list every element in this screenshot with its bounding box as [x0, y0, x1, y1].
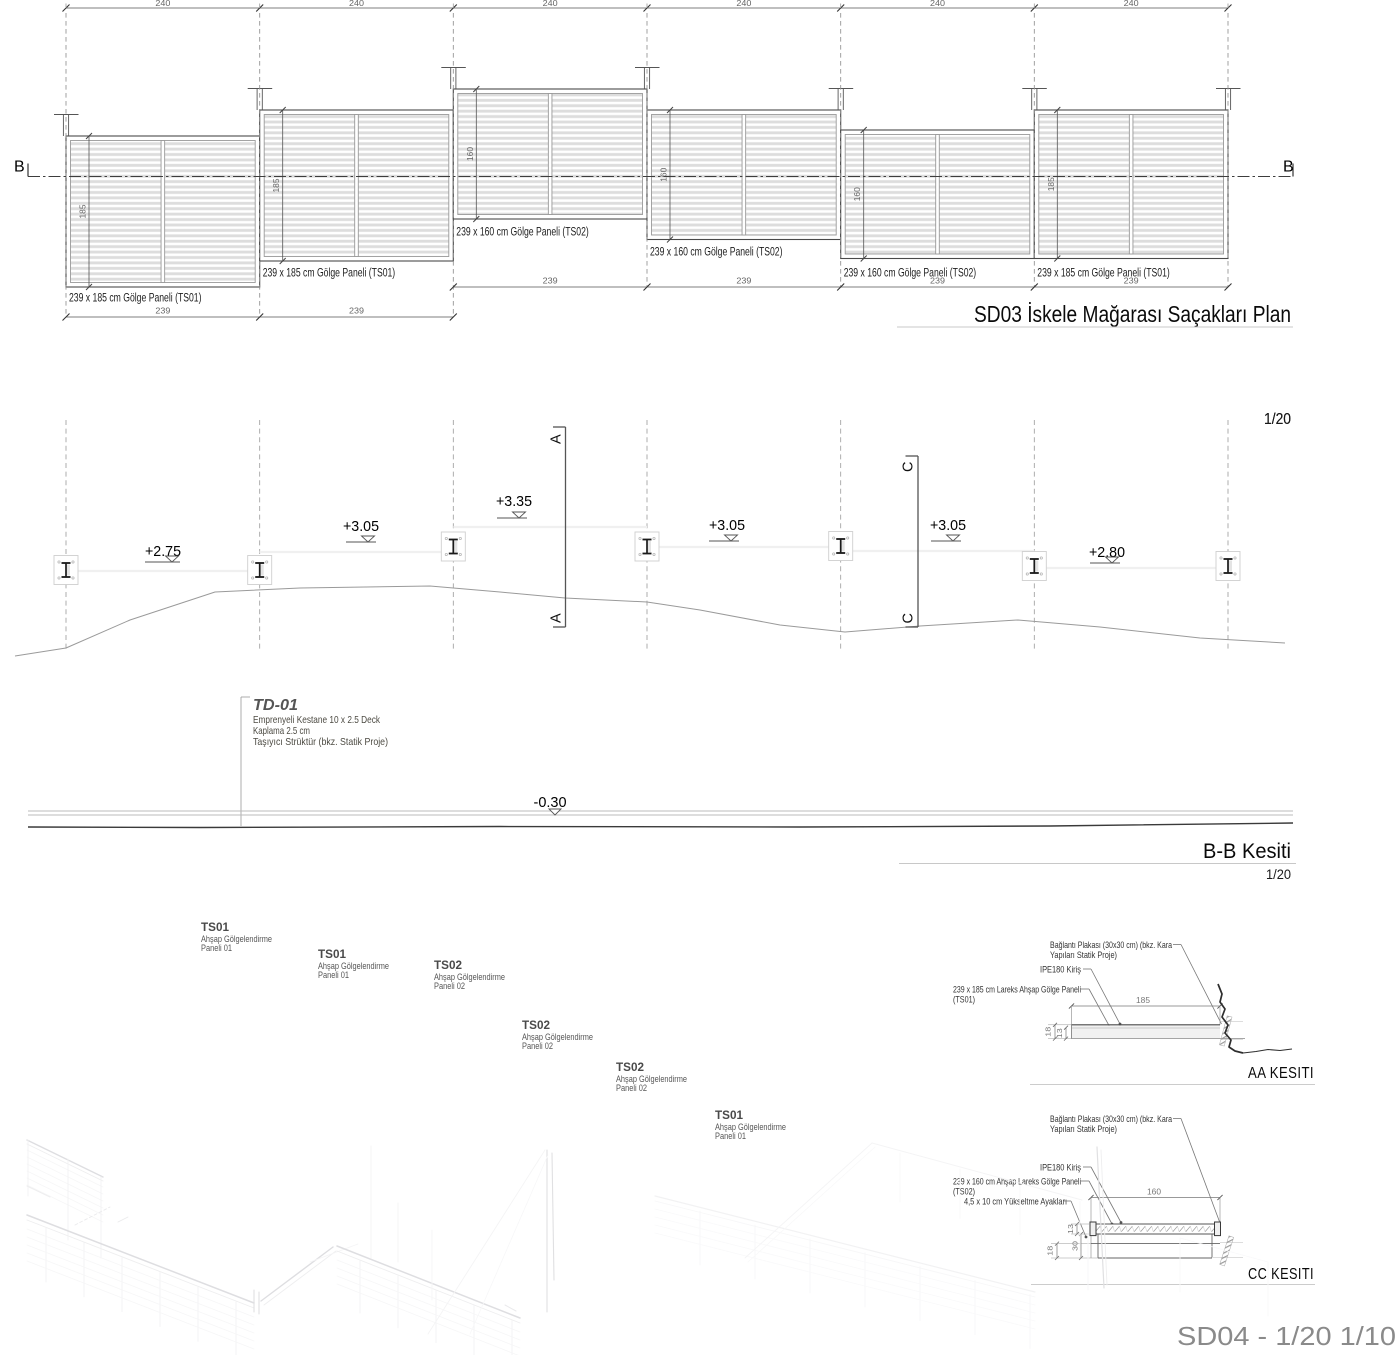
svg-text:Paneli 02: Paneli 02: [522, 1041, 553, 1052]
svg-text:239 x 160 cm Gölge Paneli (TS0: 239 x 160 cm Gölge Paneli (TS02): [456, 225, 589, 239]
svg-text:Yapıları Statik Proje): Yapıları Statik Proje): [1050, 950, 1117, 961]
svg-text:A: A: [549, 434, 565, 444]
svg-text:Paneli 02: Paneli 02: [434, 981, 465, 992]
svg-text:(TS01): (TS01): [953, 995, 975, 1006]
svg-text:TS02: TS02: [522, 1020, 550, 1032]
svg-text:Paneli 01: Paneli 01: [715, 1131, 746, 1142]
svg-text:IPE180 Kiriş: IPE180 Kiriş: [1040, 965, 1081, 976]
svg-text:TS01: TS01: [201, 922, 230, 934]
svg-text:TS01: TS01: [318, 949, 347, 961]
svg-text:SD04 - 1/20 1/10: SD04 - 1/20 1/10: [1177, 1321, 1396, 1351]
svg-text:Paneli 02: Paneli 02: [616, 1083, 647, 1094]
svg-text:C: C: [901, 462, 917, 472]
svg-text:185: 185: [1136, 995, 1150, 1005]
svg-text:TS01: TS01: [715, 1110, 744, 1122]
svg-text:160: 160: [1147, 1187, 1161, 1197]
svg-text:18: 18: [1046, 1246, 1055, 1256]
svg-text:1/20: 1/20: [1266, 866, 1291, 882]
svg-text:240: 240: [155, 0, 170, 8]
svg-text:+3.05: +3.05: [930, 517, 966, 534]
svg-text:CC KESITI: CC KESITI: [1248, 1266, 1314, 1283]
svg-text:+3.05: +3.05: [343, 518, 379, 535]
svg-text:4,5 x 10 cm Yükseltme Ayaklar: 4,5 x 10 cm Yükseltme Ayakları: [964, 1197, 1067, 1208]
svg-text:185: 185: [78, 204, 88, 218]
svg-text:IPE180 Kiriş: IPE180 Kiriş: [1040, 1163, 1081, 1174]
svg-text:TS02: TS02: [434, 960, 462, 972]
svg-text:Yapıları Statik Proje): Yapıları Statik Proje): [1050, 1124, 1117, 1135]
svg-text:185: 185: [271, 178, 281, 192]
svg-text:239 x 185 cm Gölge Paneli (TS0: 239 x 185 cm Gölge Paneli (TS01): [69, 291, 202, 305]
svg-text:239: 239: [543, 276, 558, 286]
svg-text:160: 160: [852, 187, 862, 201]
svg-text:Paneli 01: Paneli 01: [201, 943, 232, 954]
svg-text:240: 240: [1124, 0, 1139, 8]
svg-text:240: 240: [349, 0, 364, 8]
svg-text:TD-01: TD-01: [253, 697, 298, 714]
svg-text:B-B Kesiti: B-B Kesiti: [1203, 839, 1291, 863]
svg-text:239: 239: [349, 306, 364, 316]
svg-text:185: 185: [1046, 177, 1056, 191]
svg-text:B: B: [1283, 159, 1294, 176]
svg-text:239: 239: [155, 306, 170, 316]
svg-text:C: C: [901, 613, 917, 623]
svg-text:1/20: 1/20: [1264, 411, 1291, 428]
svg-text:+3.05: +3.05: [709, 517, 745, 534]
svg-text:239: 239: [1124, 276, 1139, 286]
svg-text:A: A: [549, 613, 565, 623]
svg-text:239 x 185 cm Gölge Paneli (TS0: 239 x 185 cm Gölge Paneli (TS01): [1037, 266, 1170, 280]
svg-text:18: 18: [1044, 1027, 1053, 1037]
svg-text:160: 160: [465, 147, 475, 161]
svg-text:Taşıyıcı Strüktür (bkz. Statik: Taşıyıcı Strüktür (bkz. Statik Proje): [253, 736, 388, 748]
svg-text:239: 239: [930, 276, 945, 286]
svg-text:239: 239: [736, 276, 751, 286]
svg-text:240: 240: [543, 0, 558, 8]
svg-text:B: B: [14, 159, 25, 176]
svg-text:240: 240: [736, 0, 751, 8]
svg-text:SD03 İskele Mağarası Saçakları: SD03 İskele Mağarası Saçakları Plan: [974, 301, 1291, 327]
svg-text:13: 13: [1066, 1224, 1075, 1234]
svg-text:239 x 160 cm Gölge Paneli (TS0: 239 x 160 cm Gölge Paneli (TS02): [844, 266, 977, 280]
svg-text:239 x 160 cm Gölge Paneli (TS0: 239 x 160 cm Gölge Paneli (TS02): [650, 245, 783, 259]
svg-text:239 x 185 cm Gölge Paneli (TS: 239 x 185 cm Gölge Paneli (TS01): [263, 266, 396, 280]
svg-text:-0.30: -0.30: [534, 794, 567, 811]
svg-text:240: 240: [930, 0, 945, 8]
svg-text:13: 13: [1055, 1028, 1064, 1038]
svg-text:AA KESITI: AA KESITI: [1248, 1065, 1314, 1082]
svg-text:TS02: TS02: [616, 1062, 644, 1074]
svg-text:160: 160: [659, 167, 669, 181]
svg-text:+3.35: +3.35: [496, 493, 532, 510]
svg-text:30: 30: [1071, 1241, 1080, 1251]
svg-text:Paneli 01: Paneli 01: [318, 970, 349, 981]
